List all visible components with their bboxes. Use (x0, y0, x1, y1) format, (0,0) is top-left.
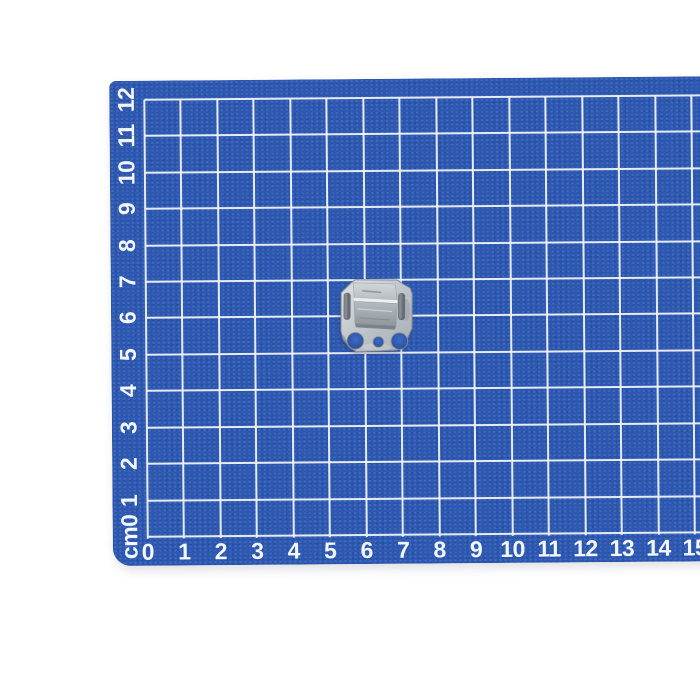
grid-line-v (654, 96, 659, 535)
x-axis: 0123456789101112131415 (109, 76, 700, 81)
x-axis-label: 1 (178, 540, 190, 563)
x-axis-label: 10 (500, 538, 525, 561)
x-axis-label: 15 (683, 536, 700, 559)
clip-bridge-front-face (354, 301, 397, 326)
y-axis-label: 1 (118, 494, 141, 506)
grid-line-v (544, 97, 549, 536)
x-axis-label: 6 (360, 539, 372, 562)
clip-hole-middle (373, 337, 384, 348)
y-axis-label: 3 (117, 421, 140, 433)
grid-line-h (147, 386, 700, 392)
grid-line-v (326, 98, 331, 537)
clip-hole-right (391, 333, 408, 350)
grid-line-v (180, 99, 185, 538)
grid-line-h (147, 458, 700, 464)
y-axis-label: 5 (117, 349, 140, 361)
grid-line-v (253, 99, 258, 538)
x-axis-label: 11 (537, 537, 561, 560)
grid-line-v (289, 99, 294, 538)
grid-line-h (145, 204, 700, 210)
metal-clip-object (340, 278, 413, 353)
x-axis-label: 0 (142, 541, 154, 564)
y-axis: cm0123456789101112 (109, 76, 700, 81)
x-axis-label: 3 (251, 540, 263, 563)
cutting-mat: 0123456789101112131415 cm012345678910111… (109, 76, 700, 566)
grid-line-v (690, 95, 695, 534)
y-axis-label: 11 (115, 125, 138, 149)
y-axis-label: 9 (116, 203, 139, 215)
grid-lines (109, 76, 700, 81)
product-photo: 0123456789101112131415 cm012345678910111… (0, 0, 700, 700)
grid-line-v (581, 96, 586, 535)
y-axis-label: 8 (116, 239, 139, 251)
x-axis-label: 14 (646, 537, 671, 560)
y-axis-label: 12 (115, 87, 138, 112)
grid-line-v (435, 97, 440, 536)
grid-line-v (216, 99, 221, 538)
x-axis-label: 2 (215, 540, 227, 563)
clip-hole-left (347, 332, 364, 349)
grid-line-h (147, 422, 700, 428)
x-axis-label: 8 (433, 538, 445, 561)
clip-right-slot-highlight (399, 294, 402, 319)
x-axis-label: 5 (324, 539, 336, 562)
x-axis-label: 4 (288, 540, 300, 563)
grid-line-h (146, 313, 700, 319)
x-axis-label: 9 (470, 538, 482, 561)
grid-line-v (143, 100, 148, 539)
grid-line-v (508, 97, 513, 536)
y-axis-label: 7 (116, 276, 139, 288)
grid-line-h (146, 349, 700, 355)
x-axis-label: 12 (573, 537, 598, 560)
grid-line-v (617, 96, 622, 535)
grid-line-h (145, 131, 700, 137)
clip-left-slot-highlight (344, 294, 347, 319)
y-axis-label: 6 (117, 312, 140, 324)
y-axis-label: 4 (117, 385, 140, 397)
grid-line-h (146, 276, 700, 282)
x-axis-label: 13 (610, 537, 635, 560)
y-axis-label: 2 (118, 458, 141, 470)
y-axis-label: 10 (115, 160, 138, 185)
y-axis-label: cm0 (118, 515, 141, 560)
x-axis-label: 7 (397, 539, 409, 562)
grid-line-h (145, 167, 700, 173)
grid-line-h (145, 240, 700, 246)
grid-line-v (472, 97, 477, 536)
grid-line-h (147, 495, 700, 501)
